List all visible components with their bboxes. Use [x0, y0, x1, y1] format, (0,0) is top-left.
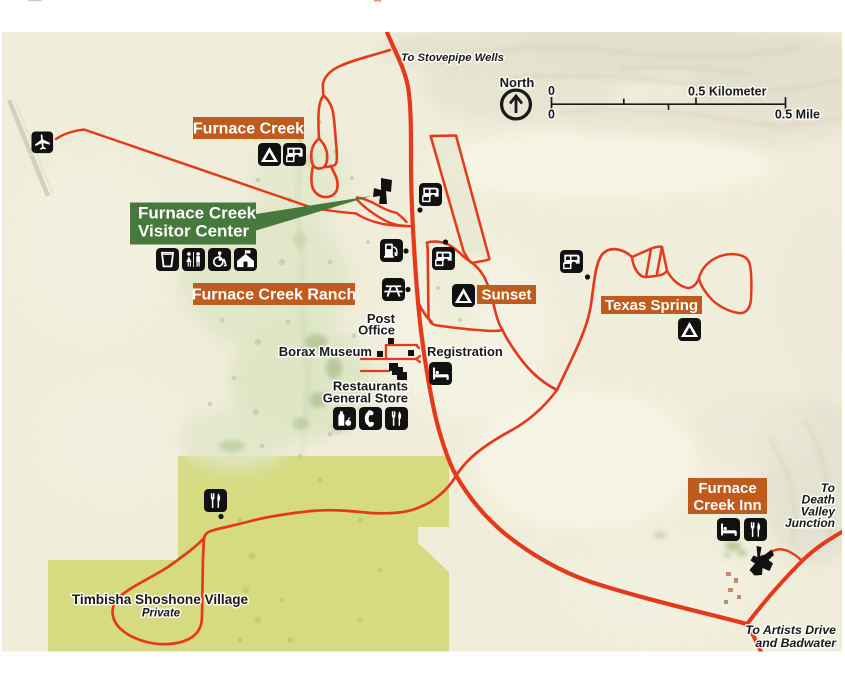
svg-text:Furnace Creek: Furnace Creek [138, 204, 257, 223]
svg-text:Furnace: Furnace [698, 480, 756, 497]
svg-text:Furnace Creek: Furnace Creek [193, 121, 304, 138]
svg-text:Private: Private [142, 608, 181, 620]
svg-text:0.5 Mile: 0.5 Mile [775, 108, 820, 122]
svg-text:To Stovepipe Wells: To Stovepipe Wells [401, 52, 504, 64]
svg-text:To Artists Drive: To Artists Drive [745, 623, 836, 637]
svg-text:Borax Museum: Borax Museum [279, 344, 372, 359]
svg-text:Junction: Junction [785, 516, 835, 530]
svg-text:0.5 Kilometer: 0.5 Kilometer [688, 85, 767, 99]
svg-text:0: 0 [548, 84, 555, 98]
svg-text:Visitor Center: Visitor Center [138, 222, 250, 241]
svg-text:and Badwater: and Badwater [755, 636, 837, 650]
svg-text:Office: Office [358, 323, 395, 338]
svg-text:North: North [500, 75, 535, 90]
svg-text:Texas Spring: Texas Spring [605, 297, 698, 314]
svg-text:Registration: Registration [427, 344, 503, 359]
svg-text:Furnace Creek Ranch: Furnace Creek Ranch [192, 287, 357, 304]
svg-text:0: 0 [548, 108, 555, 122]
svg-text:Sunset: Sunset [481, 287, 531, 304]
svg-text:General Store: General Store [323, 391, 408, 406]
svg-text:Creek Inn: Creek Inn [693, 497, 761, 514]
svg-text:Timbisha Shoshone Village: Timbisha Shoshone Village [72, 592, 249, 607]
